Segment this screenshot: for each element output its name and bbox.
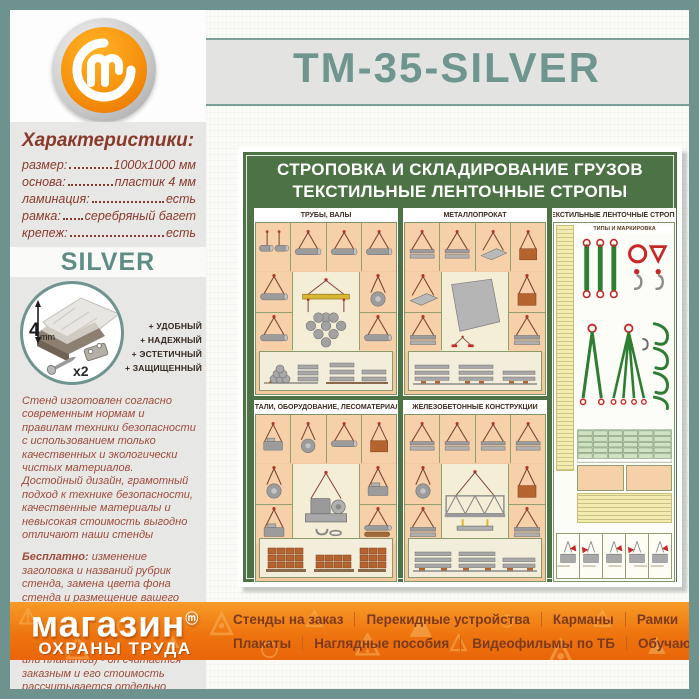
spec-row: основа:пластик 4 мм [22,175,196,189]
spec-row: рамка:серебряный багет [22,209,196,223]
specs-block: Характеристики: размер:1000x1000 мм осно… [10,122,206,247]
caution-row [556,533,672,579]
panel-cell-icon [409,539,541,577]
panel-cell [291,415,325,463]
caution-cell [580,534,602,578]
menu-item-karmany[interactable]: Карманы [541,612,625,627]
panel-cell [256,464,292,504]
panel-cell-icon [256,415,290,463]
poster-image: СТРОПОВКА И СКЛАДИРОВАНИЕ ГРУЗОВ ТЕКСТИЛ… [238,147,682,587]
spec-label: размер: [22,158,67,172]
panel-top-row [256,223,396,271]
panel-cell [405,272,441,312]
panel-cell [476,415,510,463]
panel-cell [405,415,439,463]
poster-title-line1: СТРОПОВКА И СКЛАДИРОВАНИЕ ГРУЗОВ [243,159,677,181]
panel-cell [509,313,545,353]
menu-item-perekidnye-ustroystva[interactable]: Перекидные устройства [354,612,540,627]
spec-label: крепеж: [22,226,68,240]
panel-cell-icon [405,313,441,353]
two-leg-sling-icon [577,307,607,427]
panel-cell-icon [509,464,545,504]
panel-cell-icon [442,464,508,544]
stacking-diagram [408,351,542,391]
silver-badge: SILVER [10,247,206,277]
spec-label: рамка: [22,209,61,223]
description-paragraph: Стенд изготовлен согласно современным но… [22,395,196,542]
bottom-bar: ⚠△○▲◬○△⚠▲△○◬△▲ магазинⓜ ОХРАНЫ ТРУДА Сте… [10,602,689,660]
caution-cell [557,534,579,578]
panel-main-illustration [442,272,508,352]
panel-pipes: ТРУБЫ, ВАЛЫ [254,208,398,396]
panel-cell-icon [405,272,441,312]
panel-body [255,222,397,395]
panel-cell [440,223,474,271]
panel-cell [511,223,545,271]
panel-cell-icon [256,313,292,353]
panel-cell [405,223,439,271]
dot-leader [69,167,111,169]
spec-label: ламинация: [22,192,90,206]
caution-cell [649,534,671,578]
panel-top-row [405,415,545,463]
panel-cell-icon [360,313,396,353]
dot-leader [92,201,164,203]
panel-cell [509,464,545,504]
panel-cell-icon [405,415,439,463]
panel-body [255,414,397,582]
panel-cell [509,272,545,312]
panel-mid-row [405,464,545,542]
panel-cell-icon [291,415,325,463]
panel-cell-icon [256,464,292,504]
notes-strip [556,225,574,471]
panel-cell-icon [405,223,439,271]
feature-bullet: + ЗАЩИЩЕННЫЙ [125,363,202,373]
load-capacity-table [577,429,672,463]
menu-item-stendy-na-zakaz[interactable]: Стенды на заказ [222,612,354,627]
panel-cell [405,313,441,353]
panel-body [404,414,546,582]
feature-bullet: + УДОБНЫЙ [125,321,202,331]
panel-main-illustration [442,464,508,544]
panel-cell-icon [291,223,325,271]
panel-cell-icon [362,223,396,271]
panel-cell [256,272,292,312]
trademark-icon: ⓜ [185,611,199,626]
feature-bullet: + НАДЕЖНЫЙ [125,335,202,345]
panel-cell-icon [409,352,541,390]
panel-cell-icon [405,464,441,504]
poster-title: СТРОПОВКА И СКЛАДИРОВАНИЕ ГРУЗОВ ТЕКСТИЛ… [243,159,677,203]
panel-cell-icon [649,534,671,578]
panel-cell-icon [626,534,648,578]
product-page: ТМ-35-SILVER Характеристики: размер:1000… [0,0,699,699]
panel-cell-icon [476,223,510,271]
panel-cell-icon [360,272,396,312]
panel-header: МЕТАЛЛОПРОКАТ [404,209,546,222]
store-logo[interactable]: магазинⓜ ОХРАНЫ ТРУДА [10,602,220,660]
panel-cell [256,313,292,353]
frame-corner-figure: 4 mm x2 [20,281,124,385]
panel-mid-row [256,272,396,350]
store-subtitle: ОХРАНЫ ТРУДА [10,641,220,657]
dot-leader [70,235,164,237]
panel-details: ДЕТАЛИ, ОБОРУДОВАНИЕ, ЛЕСОМАТЕРИАЛЫ [254,400,398,583]
panel-cell-icon [580,534,602,578]
panel-body: ТИПЫ И МАРКИРОВКА [553,222,675,582]
panel-cell [511,415,545,463]
panel-cell [327,415,361,463]
panel-cell [360,272,396,312]
feature-bullet: + ЭСТЕТИЧНЫЙ [125,349,202,359]
spec-value: 1000x1000 мм [114,158,196,172]
panel-cell-icon [327,415,361,463]
spec-value: есть [166,192,196,206]
spec-label: основа: [22,175,66,189]
poster-board: СТРОПОВКА И СКЛАДИРОВАНИЕ ГРУЗОВ ТЕКСТИЛ… [243,152,677,582]
panel-cell-icon [511,415,545,463]
panel-main-illustration [293,464,359,544]
panel-header: ТЕКСТИЛЬНЫЕ ЛЕНТОЧНЫЕ СТРОПЫ [553,209,675,222]
panel-cell [360,313,396,353]
sling-use-cells [577,465,672,491]
panel-cell-icon [260,352,392,390]
sling-assemblies-row [577,307,672,427]
svg-text:x2: x2 [73,363,89,379]
panel-cell-icon [256,223,290,271]
panel-cell-icon [442,272,508,352]
stacking-diagram [259,351,393,391]
panel-top-row [256,415,396,463]
panel-cell [256,415,290,463]
panel-cell-icon [260,539,392,577]
spec-row: ламинация:есть [22,192,196,206]
panel-cell-icon [557,534,579,578]
panel-cell [405,464,441,504]
logo-m-icon [61,27,147,113]
caution-cell [603,534,625,578]
svg-text:mm: mm [40,332,55,342]
panel-cell-icon [603,534,625,578]
dot-leader [68,184,113,186]
panel-mid-row [256,464,396,542]
panel-header: ТРУБЫ, ВАЛЫ [255,209,397,222]
panel-cell-icon [509,313,545,353]
strap-samples-icon [577,233,624,305]
menu-item-videofilmy-po-tb[interactable]: Видеофильмы по ТБ [460,636,626,651]
panel-cell-icon [440,223,474,271]
spec-row: размер:1000x1000 мм [22,158,196,172]
panel-cell-icon [293,464,359,544]
panel-top-row [405,223,545,271]
panel-cell-icon [256,272,292,312]
sling-use-cell [577,465,624,491]
feature-bullets: + УДОБНЫЙ + НАДЕЖНЫЙ + ЭСТЕТИЧНЫЙ + ЗАЩИ… [125,317,202,377]
spec-value: пластик 4 мм [115,175,196,189]
logo-box [10,10,206,122]
panel-textile-slings: ТЕКСТИЛЬНЫЕ ЛЕНТОЧНЫЕ СТРОПЫ ТИПЫ И МАРК… [552,208,676,583]
four-leg-sling-icon [609,307,648,427]
panel-cell-icon [360,464,396,504]
panel-cell-icon [476,415,510,463]
panel-cell-icon [511,223,545,271]
panel-cell [440,415,474,463]
link-types-icon [626,233,673,305]
sling-use-cell [626,465,673,491]
panel-mid-row [405,272,545,350]
dot-leader [63,218,83,220]
loop-ends-icon [651,307,672,427]
poster-title-line2: ТЕКСТИЛЬНЫЕ ЛЕНТОЧНЫЕ СТРОПЫ [243,181,677,203]
store-name: магазин [31,603,185,644]
site-logo[interactable] [52,18,156,122]
panel-concrete: ЖЕЛЕЗОБЕТОННЫЕ КОНСТРУКЦИИ [403,400,547,583]
panel-metal: МЕТАЛЛОПРОКАТ [403,208,547,396]
panel-header: ЖЕЛЕЗОБЕТОННЫЕ КОНСТРУКЦИИ [404,401,546,414]
menu-item-obuchayushchie-programmy[interactable]: Обучающие программы [626,636,689,651]
spec-value: есть [166,226,196,240]
specs-header: Характеристики: [22,130,196,152]
strap-types-row [577,233,672,305]
stacking-diagram [408,538,542,578]
caution-cell [626,534,648,578]
panel-content: ТИПЫ И МАРКИРОВКА [577,225,672,523]
panel-cell [327,223,361,271]
page-title: ТМ-35-SILVER [205,44,689,92]
panel-cell-icon [509,272,545,312]
svg-text:4: 4 [29,320,40,341]
main-menu: Стенды на заказ Перекидные устройства Ка… [222,607,681,655]
menu-item-ramki[interactable]: Рамки [625,612,689,627]
menu-item-naglyadnye-posobiya[interactable]: Наглядные пособия [302,636,460,651]
panel-cell-icon [440,415,474,463]
panel-body [404,222,546,395]
panel-cell [362,415,396,463]
spec-row: крепеж:есть [22,226,196,240]
yellow-note-block [577,493,672,523]
panel-cell-icon [293,272,359,352]
menu-item-plakaty[interactable]: Плакаты [222,636,302,651]
panel-header: ДЕТАЛИ, ОБОРУДОВАНИЕ, ЛЕСОМАТЕРИАЛЫ [255,401,397,414]
panel-cell [360,464,396,504]
panel-cell [362,223,396,271]
panel-subtitle: ТИПЫ И МАРКИРОВКА [577,225,672,233]
panel-main-illustration [293,272,359,352]
panel-cell [476,223,510,271]
spec-value: серебряный багет [85,209,196,223]
panel-cell-icon [327,223,361,271]
stacking-diagram [259,538,393,578]
panel-cell [291,223,325,271]
panel-cell [256,223,290,271]
panel-cell-icon [362,415,396,463]
menu-row-1: Стенды на заказ Перекидные устройства Ка… [222,607,681,631]
frame-feature-box: 4 mm x2 + УДОБНЫЙ + [10,277,206,389]
menu-row-2: Плакаты Наглядные пособия Видеофильмы по… [222,631,681,655]
